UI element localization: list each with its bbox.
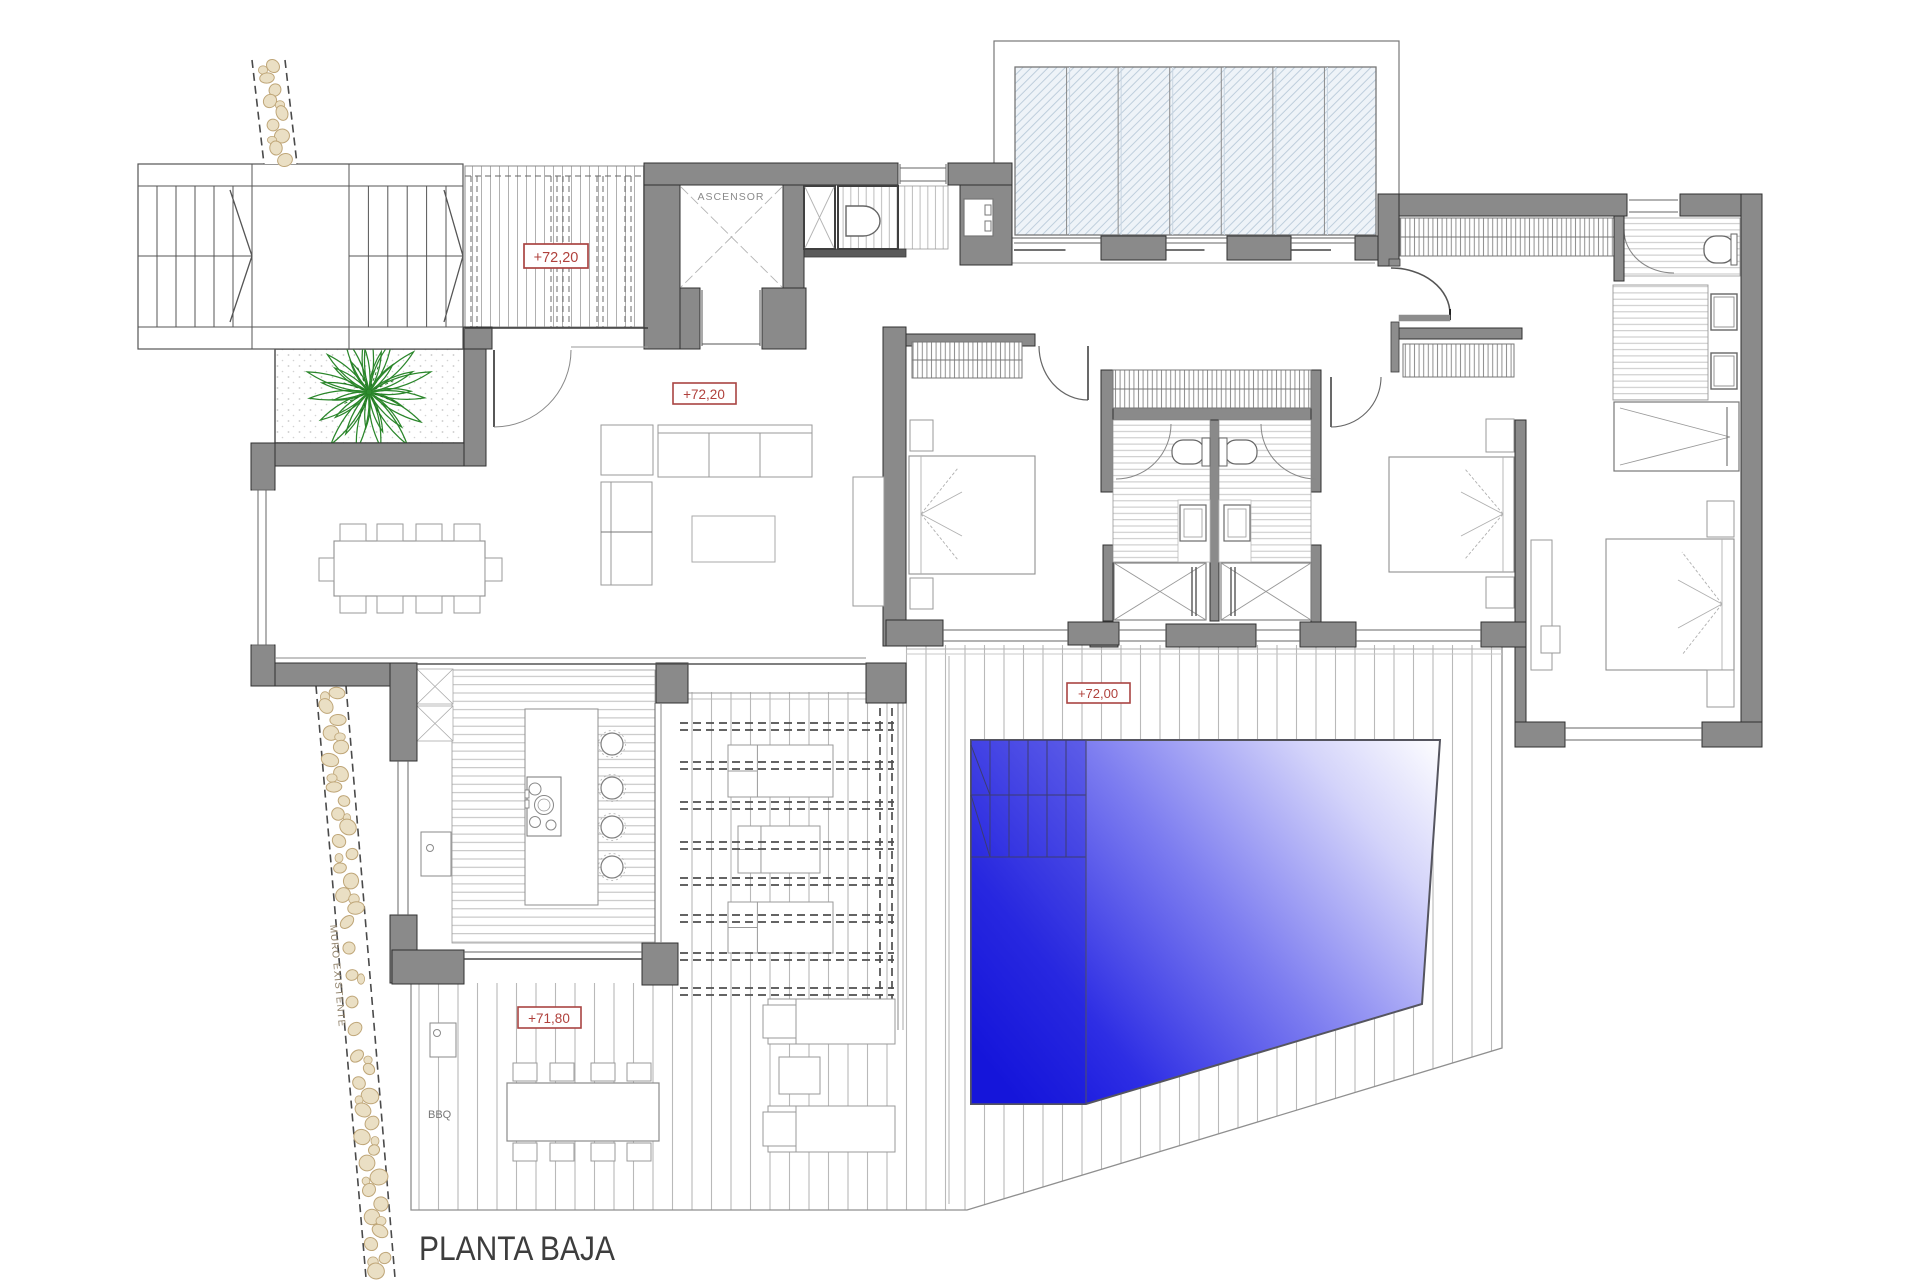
- svg-text:ASCENSOR: ASCENSOR: [698, 191, 765, 203]
- svg-text:+72,20: +72,20: [534, 250, 579, 266]
- svg-text:PLANTA BAJA: PLANTA BAJA: [419, 1230, 615, 1268]
- svg-text:+72,20: +72,20: [683, 387, 725, 402]
- svg-text:BBQ: BBQ: [428, 1109, 452, 1121]
- svg-text:+71,80: +71,80: [528, 1011, 570, 1026]
- svg-text:+72,00: +72,00: [1078, 686, 1118, 701]
